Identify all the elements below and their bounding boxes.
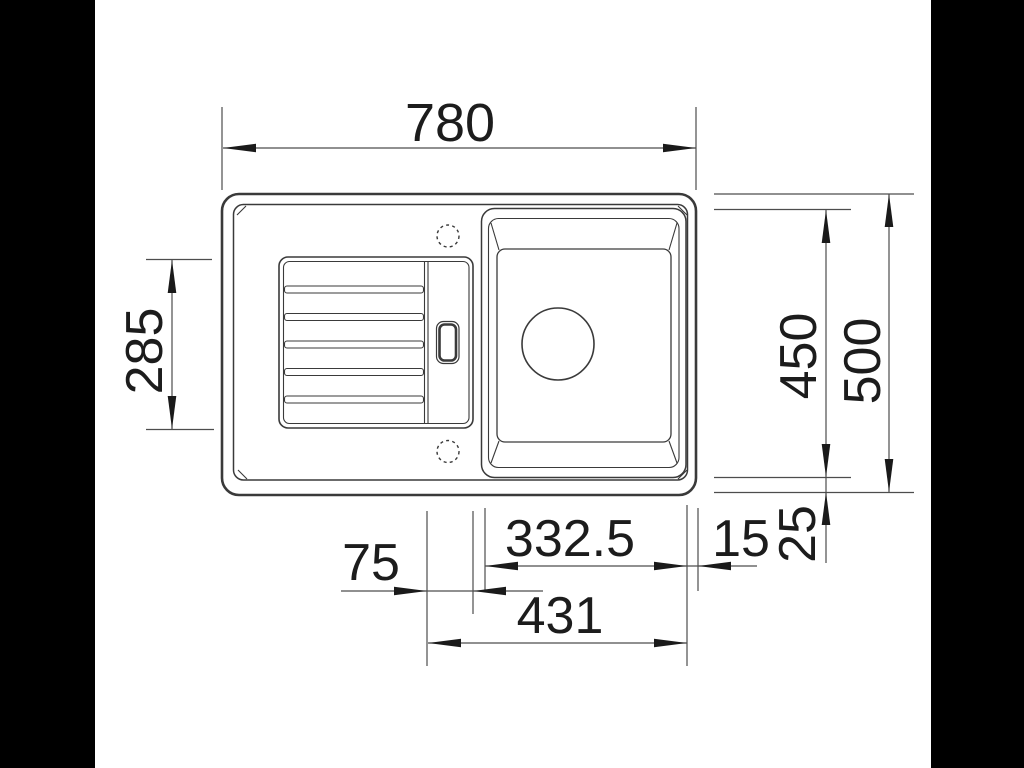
- technical-drawing-canvas: 780 285 450 500 25 332.5 15: [0, 0, 1024, 768]
- dim-75-label: 75: [342, 534, 400, 592]
- dim-15-label: 15: [712, 510, 770, 568]
- dim-780-label: 780: [405, 93, 495, 153]
- dim-431-label: 431: [517, 587, 604, 645]
- dim-332-5-label: 332.5: [505, 510, 635, 568]
- dim-285-label: 285: [116, 308, 174, 395]
- dim-25-label: 25: [769, 505, 827, 563]
- dim-450-label: 450: [770, 313, 828, 400]
- dim-500-label: 500: [834, 318, 892, 405]
